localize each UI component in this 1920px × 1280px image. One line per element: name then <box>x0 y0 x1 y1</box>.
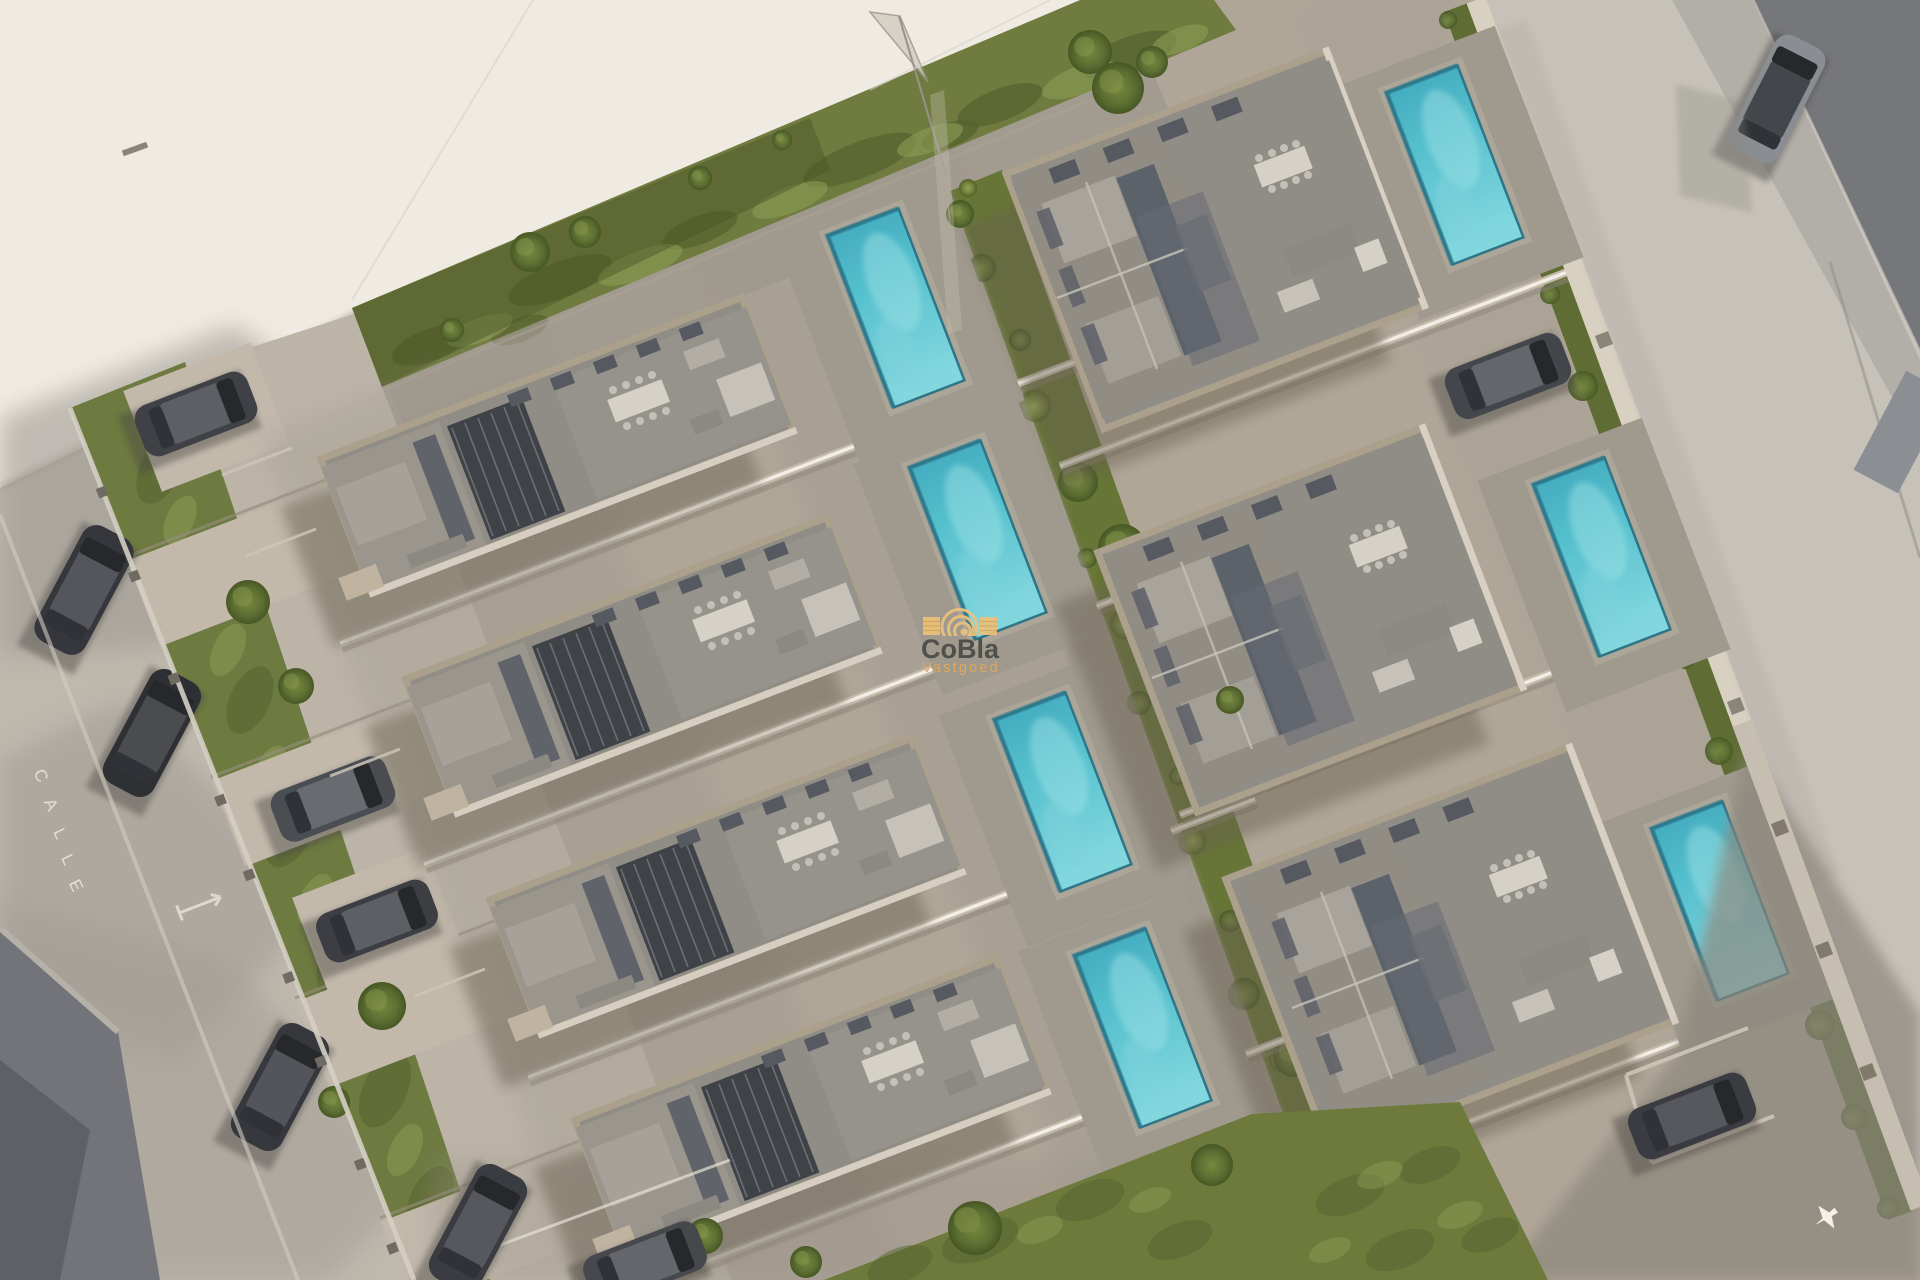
svg-text:Vastgoed: Vastgoed <box>922 660 1000 676</box>
